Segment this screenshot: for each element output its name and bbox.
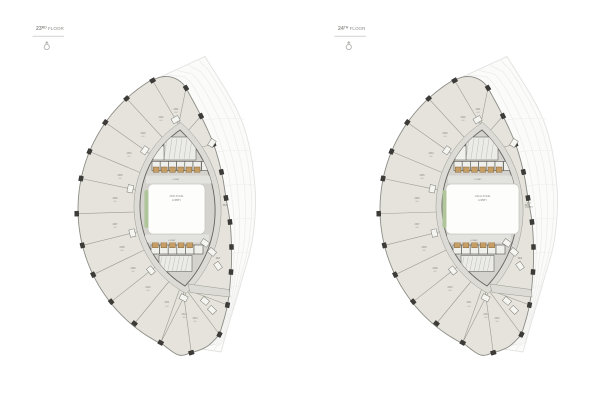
- svg-text:REF: REF: [518, 258, 523, 260]
- svg-text:LOBBY: LOBBY: [474, 179, 482, 181]
- svg-text:2302: 2302: [460, 117, 466, 119]
- svg-text:LOBBY: LOBBY: [470, 240, 478, 242]
- svg-text:2302: 2302: [158, 117, 164, 119]
- svg-text:LOBBY: LOBBY: [172, 198, 181, 202]
- svg-text:2304: 2304: [126, 153, 132, 155]
- svg-text:2301: 2301: [173, 109, 179, 111]
- svg-text:2308: 2308: [421, 247, 427, 249]
- svg-text:2304: 2304: [428, 153, 434, 155]
- svg-text:2311: 2311: [165, 302, 171, 304]
- svg-text:2305: 2305: [117, 175, 123, 177]
- svg-text:REF: REF: [216, 258, 221, 260]
- svg-text:2312: 2312: [181, 314, 187, 316]
- svg-text:REF: REF: [223, 205, 228, 207]
- svg-text:2303: 2303: [442, 133, 448, 135]
- svg-text:LOBBY: LOBBY: [172, 179, 180, 181]
- svg-text:2309: 2309: [432, 268, 438, 270]
- svg-text:2305: 2305: [419, 175, 425, 177]
- svg-text:LOBBY: LOBBY: [478, 198, 487, 202]
- svg-text:2310: 2310: [145, 287, 151, 289]
- svg-text:2306: 2306: [112, 198, 118, 200]
- svg-text:2301: 2301: [475, 109, 481, 111]
- svg-text:2307: 2307: [112, 224, 118, 226]
- svg-text:LOBBY: LOBBY: [168, 240, 176, 242]
- svg-text:2307: 2307: [414, 224, 420, 226]
- svg-text:2311: 2311: [467, 302, 473, 304]
- svg-text:2313: 2313: [192, 318, 198, 320]
- svg-text:2313: 2313: [494, 318, 500, 320]
- svg-text:SKY: SKY: [527, 202, 532, 205]
- svg-text:2303: 2303: [140, 133, 146, 135]
- svg-text:2306: 2306: [414, 198, 420, 200]
- svg-text:2310: 2310: [447, 287, 453, 289]
- svg-text:2308: 2308: [119, 247, 125, 249]
- svg-text:LOBBY: LOBBY: [525, 206, 533, 209]
- svg-text:2309: 2309: [130, 268, 136, 270]
- svg-text:2312: 2312: [483, 314, 489, 316]
